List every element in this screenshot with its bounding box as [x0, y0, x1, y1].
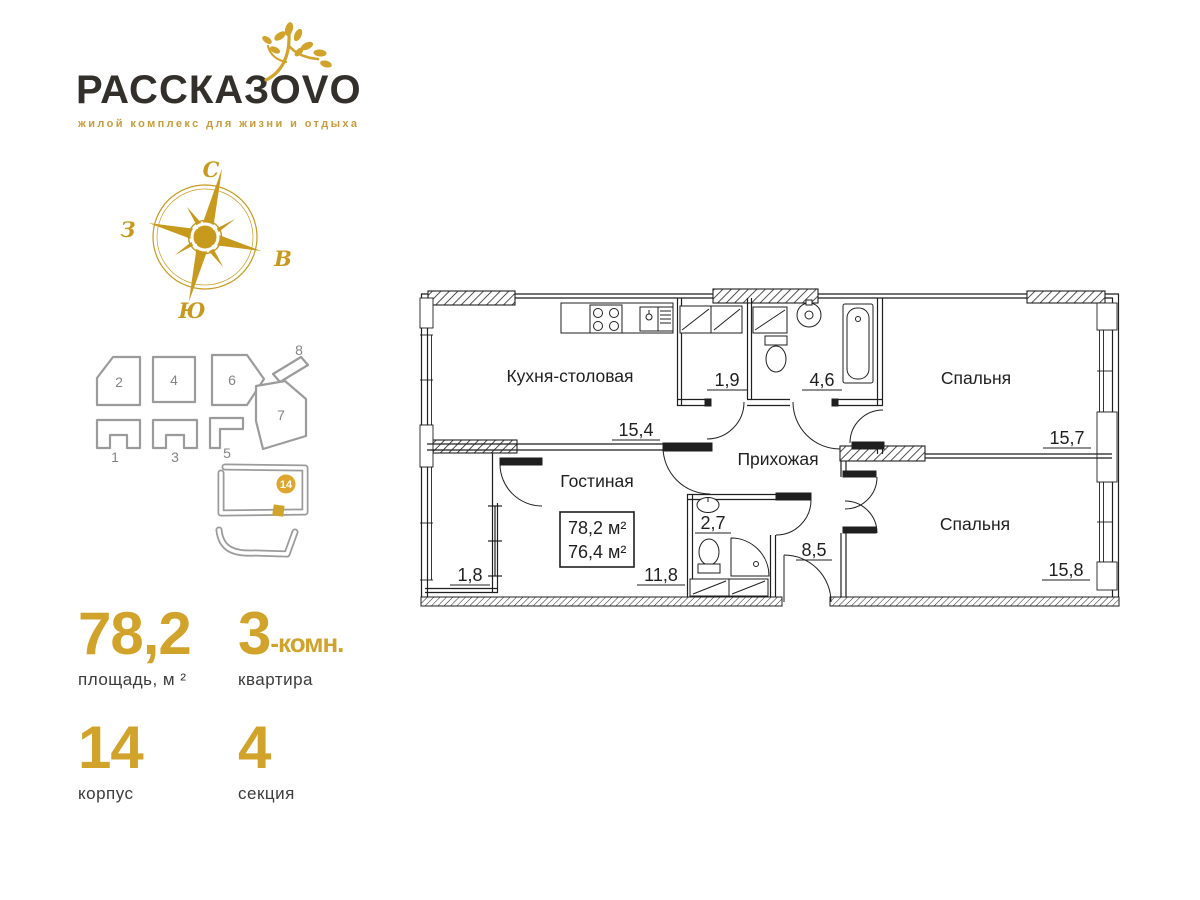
- building-1-outline: [97, 420, 140, 448]
- stat-rooms-suffix: -комн.: [270, 628, 343, 658]
- compass-east-label: В: [273, 246, 292, 271]
- stat-rooms-value: 3: [238, 608, 270, 660]
- compass-north-label: С: [203, 157, 220, 182]
- kitchen-fixtures: [561, 303, 673, 333]
- area-kitchen: 15,4: [618, 420, 653, 440]
- room-bedroom-top-label: Спальня: [941, 368, 1011, 388]
- building-4-label: 4: [170, 372, 178, 388]
- area-balcony: 1,8: [457, 565, 482, 585]
- room-hallway-label: Прихожая: [737, 449, 818, 469]
- building-5-outline: [210, 418, 243, 448]
- building-8-outline: [273, 357, 308, 382]
- building-2-label: 2: [115, 374, 123, 390]
- building-14-badge-label: 14: [280, 479, 293, 491]
- building-6-label: 6: [228, 372, 236, 388]
- building-5-label: 5: [223, 445, 231, 461]
- stat-section: 4 секция: [238, 722, 295, 804]
- room-living-label: Гостиная: [560, 471, 633, 491]
- stat-area-label: площадь, м ²: [78, 670, 191, 690]
- stat-building-label: корпус: [78, 784, 143, 804]
- room-bedroom-bottom-label: Спальня: [940, 514, 1010, 534]
- logo: РАССКАЗОVO: [76, 70, 362, 110]
- stat-rooms: 3-комн. квартира: [238, 608, 343, 690]
- building-1-label: 1: [111, 449, 119, 465]
- area-wardrobe: 1,9: [714, 370, 739, 390]
- stat-building-value: 14: [78, 722, 143, 774]
- section-marker: [272, 504, 284, 516]
- stat-section-value: 4: [238, 722, 270, 774]
- building-3-label: 3: [171, 449, 179, 465]
- area-wc: 2,7: [700, 513, 725, 533]
- stat-rooms-label: квартира: [238, 670, 343, 690]
- area-box: 78,2 м² 76,4 м²: [560, 512, 634, 567]
- area-living-label: 76,4 м²: [568, 542, 626, 562]
- area-bedroom-top: 15,7: [1049, 428, 1084, 448]
- flat-plan-page: РАССКАЗОVO жилой комплекс для жизни и от…: [0, 0, 1200, 900]
- room-kitchen-label: Кухня-столовая: [506, 366, 633, 386]
- floor-plan: 78,2 м² 76,4 м² Кухня-столовая Спальня П…: [418, 288, 1122, 610]
- area-total-label: 78,2 м²: [568, 518, 626, 538]
- logo-tagline: жилой комплекс для жизни и отдыха: [78, 118, 359, 130]
- stat-area-value: 78,2: [78, 608, 191, 660]
- branch-icon: [252, 22, 362, 82]
- building-7-label: 7: [277, 407, 285, 423]
- area-living: 11,8: [644, 565, 678, 585]
- stat-area: 78,2 площадь, м ²: [78, 608, 191, 690]
- area-hallway: 8,5: [801, 540, 826, 560]
- compass-south-label: Ю: [177, 298, 205, 323]
- wardrobe-fixtures: [680, 306, 787, 333]
- right-windows: [1097, 303, 1117, 590]
- area-bedroom-bottom: 15,8: [1048, 560, 1083, 580]
- area-bathroom: 4,6: [809, 370, 834, 390]
- building-3-outline: [153, 420, 197, 448]
- compass-west-label: З: [120, 217, 135, 242]
- stat-section-label: секция: [238, 784, 295, 804]
- stat-building: 14 корпус: [78, 722, 143, 804]
- bottom-wall: [421, 597, 1119, 606]
- site-plan-map: 14 1 2 3 4 5 6 7 8: [75, 340, 325, 565]
- compass-rose-icon: С Ю З В: [113, 152, 303, 332]
- building-8-label: 8: [295, 342, 303, 358]
